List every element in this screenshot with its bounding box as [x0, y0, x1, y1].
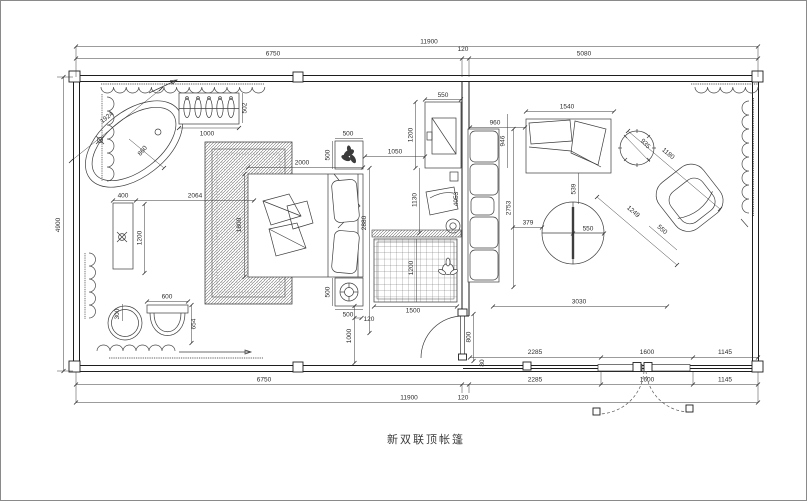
bed: [248, 174, 363, 277]
sofa-cushion: [529, 120, 572, 144]
dim-label: 1145: [718, 377, 732, 384]
corner-post: [752, 71, 763, 82]
dim-label: 550: [583, 226, 594, 233]
wardrobe: [179, 93, 239, 124]
dim-label: 4900: [55, 217, 62, 232]
dim-label: 6750: [257, 377, 272, 384]
dim-label: 11900: [400, 395, 418, 402]
tent-outer-walls: [69, 71, 763, 372]
floor-plan-drawing: 11900 6750 120 5080 4900 2285 1600 1145 …: [1, 1, 807, 501]
dim-label: 500: [343, 312, 354, 319]
outlet-box: [450, 172, 458, 181]
dim-label: 946: [500, 135, 507, 146]
wall-post: [293, 72, 303, 82]
dim-label: 4053: [453, 191, 460, 206]
tub-drain: [155, 129, 161, 135]
corner-post: [69, 71, 80, 82]
dim-label: 1600: [640, 349, 655, 356]
dim-label: 1500: [406, 308, 421, 315]
dim-label: 2000: [295, 160, 310, 167]
dim-label: 600: [162, 294, 173, 301]
dim-label: 1000: [200, 131, 215, 138]
dim-label: 1000: [346, 328, 353, 343]
dim-label: 1200: [408, 260, 415, 275]
side-table: [618, 129, 656, 167]
interior-door: [421, 309, 467, 360]
chaise-sofa: [468, 129, 499, 282]
dim-label: 539: [571, 183, 578, 194]
dim-label: 1200: [137, 230, 144, 245]
french-door: [593, 363, 693, 416]
dim-label: 654: [191, 318, 198, 329]
tv-cabinet: [425, 102, 461, 168]
dim-label: 120: [364, 316, 375, 323]
dim-label: 860: [137, 144, 150, 157]
dim-label: 550: [438, 92, 449, 99]
dim-label: 1130: [412, 193, 419, 207]
dim-label: 2753: [506, 200, 513, 215]
rail-post: [523, 362, 531, 370]
dim-label: 1600: [640, 377, 655, 384]
bench: [372, 230, 461, 237]
dim-label: 1050: [388, 149, 403, 156]
dim-label: 2285: [528, 349, 543, 356]
dim-label: 500: [343, 131, 354, 138]
drawing-title: 新双联顶帐篷: [387, 432, 465, 446]
dim-label: 300: [114, 308, 121, 319]
dim-label: 960: [490, 120, 501, 127]
wash-basin: [147, 305, 188, 336]
vanity-faucet: [117, 232, 127, 242]
dim-label: 80: [479, 359, 486, 367]
dim-label: 6750: [266, 51, 281, 58]
dim-label: 120: [458, 395, 469, 402]
dim-label: 2285: [528, 377, 543, 384]
dim-label: 502: [242, 102, 249, 113]
nightstand-top: [335, 141, 363, 169]
pillow: [331, 179, 360, 223]
wall-post: [293, 362, 303, 372]
dim-label: 120: [458, 46, 469, 53]
dim-label: 11900: [420, 39, 438, 46]
corner-post: [69, 361, 80, 372]
dim-label: 1200: [408, 127, 415, 142]
dim-label: 2064: [188, 193, 203, 200]
dimension-lines: 11900 6750 120 5080 4900 2285 1600 1145 …: [55, 39, 760, 405]
dim-label: 1540: [560, 104, 575, 111]
dim-label: 2880: [361, 215, 368, 230]
dim-label: 1249: [625, 205, 641, 220]
dim-label: 500: [325, 149, 332, 160]
dim-label: 3030: [572, 299, 587, 306]
floor-plan-sheet: 11900 6750 120 5080 4900 2285 1600 1145 …: [0, 0, 807, 501]
dim-label: 1180: [660, 147, 676, 162]
sofa: [526, 119, 611, 173]
nightstand-bottom: [335, 278, 363, 306]
dim-label: 5080: [577, 51, 592, 58]
dim-label: 400: [118, 193, 129, 200]
pillow: [331, 230, 360, 274]
dim-label: 500: [325, 286, 332, 297]
vanity-counter: [113, 203, 133, 269]
corner-post: [752, 361, 763, 372]
dim-label: 1800: [236, 217, 243, 232]
dim-label: 1145: [718, 349, 732, 356]
dim-label: 800: [466, 331, 473, 342]
dim-label: 379: [523, 220, 534, 227]
grid-rug: [374, 239, 458, 302]
dim-label: 550: [656, 224, 669, 237]
